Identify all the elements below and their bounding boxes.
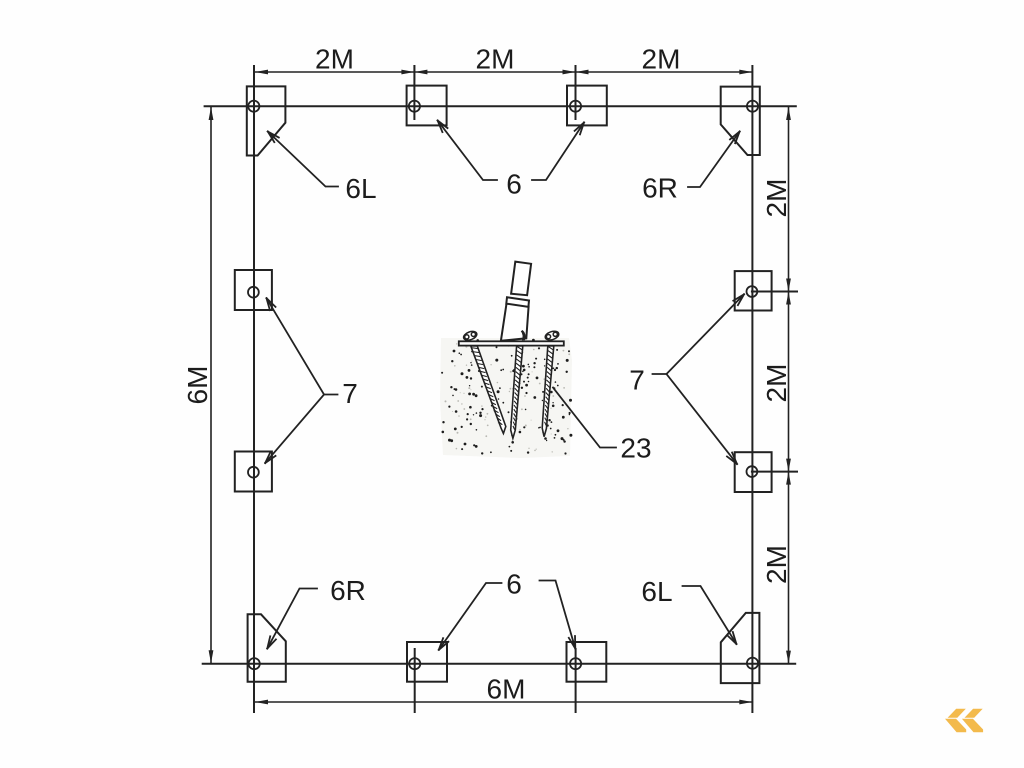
svg-text:6: 6	[506, 169, 522, 200]
svg-text:2M: 2M	[761, 364, 792, 403]
svg-text:6L: 6L	[641, 576, 672, 607]
svg-text:23: 23	[620, 433, 651, 464]
svg-text:6R: 6R	[642, 173, 678, 204]
svg-text:2M: 2M	[315, 44, 354, 75]
svg-text:2M: 2M	[642, 44, 681, 75]
svg-text:6: 6	[506, 569, 522, 600]
svg-text:2M: 2M	[761, 179, 792, 218]
svg-text:6M: 6M	[182, 366, 213, 405]
svg-text:6L: 6L	[345, 173, 376, 204]
svg-text:7: 7	[629, 365, 645, 396]
svg-text:6M: 6M	[487, 674, 526, 705]
svg-text:2M: 2M	[476, 44, 515, 75]
svg-text:6R: 6R	[330, 575, 366, 606]
svg-text:2M: 2M	[761, 545, 792, 584]
svg-text:7: 7	[342, 378, 358, 409]
